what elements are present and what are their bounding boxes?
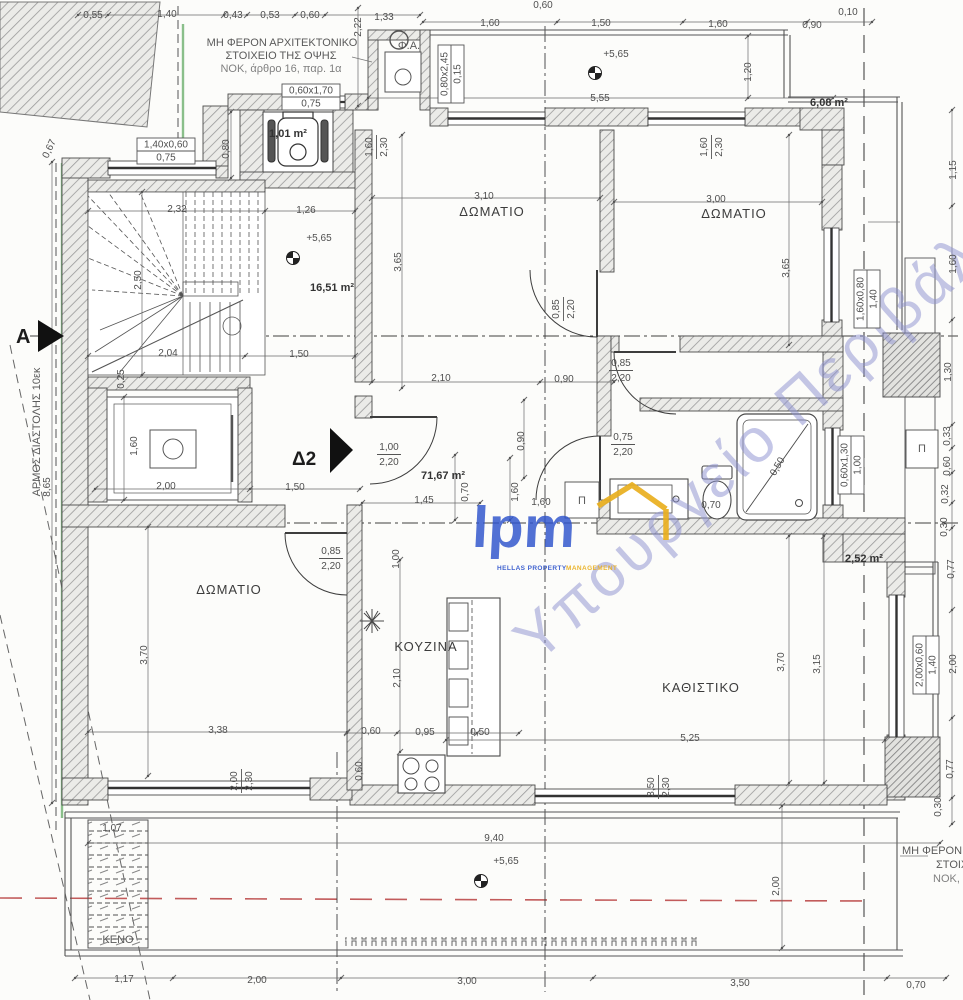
window-top-left [448, 112, 545, 125]
window-living-south [535, 789, 735, 803]
room-label: ΚΑΘΙΣΤΙΚΟ [662, 680, 740, 695]
window-tag: 0,60x1,700,75 [282, 84, 340, 110]
svg-text:2,00x0,60: 2,00x0,60 [915, 643, 926, 687]
dim-label: 0,90 [802, 20, 822, 31]
expansion-joint-label: ΑΡΜΟΣ ΔΙΑΣΤΟΛΗΣ 10εκ [31, 367, 43, 496]
detail-marker-label: Δ2 [292, 449, 316, 470]
svg-text:2,20: 2,20 [611, 373, 631, 384]
facade-note-2: ΣΤΟΙΧΕΙΟ ΤΗΣ ΟΨΗΣ [225, 50, 336, 62]
opening-tag: 1,602,30 [699, 135, 725, 159]
dim-label: 1,20 [743, 62, 754, 82]
dim-label: 0,77 [945, 759, 956, 779]
facade-note-3: ΝΟΚ, άρθρο 16, παρ. 1α [220, 63, 342, 75]
svg-text:0,75: 0,75 [301, 99, 321, 110]
floor-plan-svg: Υπουργείο Περιβάλ lpm HELLAS PROPERTY MA… [0, 0, 963, 1000]
room-label: ΔΩΜΑΤΙΟ [701, 206, 767, 221]
dim-label: 0,95 [415, 727, 435, 738]
dim-label: 2,00 [247, 975, 267, 986]
dim-label: 0,70 [906, 980, 926, 991]
room-label: ΔΩΜΑΤΙΟ [196, 582, 262, 597]
svg-text:3,50: 3,50 [646, 777, 657, 797]
dim-chain [72, 975, 949, 981]
dim-label: 1,50 [285, 482, 305, 493]
svg-text:2,20: 2,20 [566, 299, 577, 319]
dim-label: 3,65 [393, 252, 404, 272]
dim-label: 0,60 [361, 726, 381, 737]
opening-tag: 1,002,20 [377, 442, 401, 468]
room-label: ΚΟΥΖΙΝΑ [394, 639, 457, 654]
svg-text:0,60x1,70: 0,60x1,70 [289, 86, 333, 97]
wheelchair-lift [263, 112, 333, 172]
br-note-1: ΜΗ ΦΕΡΟΝ [902, 845, 962, 857]
svg-text:1,00: 1,00 [853, 455, 864, 475]
level-label: +5,65 [603, 49, 629, 60]
dim-label: 2,50 [133, 270, 144, 290]
dim-label: 3,10 [474, 191, 494, 202]
dim-label: 1,60 [510, 482, 521, 502]
section-marker-label: A [16, 326, 30, 348]
svg-text:1,60: 1,60 [699, 137, 710, 157]
svg-text:2,20: 2,20 [321, 561, 341, 572]
pi-label-2: Π [918, 443, 926, 455]
dim-label: 0,25 [116, 369, 127, 389]
dim-label: 1,00 [391, 549, 402, 569]
dim-label: 3,70 [139, 645, 150, 665]
svg-text:0,85: 0,85 [321, 546, 341, 557]
dim-label: 3,15 [812, 654, 823, 674]
dim-label: 0,90 [554, 374, 574, 385]
dim-label: 5,55 [590, 93, 610, 104]
dim-label: 1,40 [157, 9, 177, 20]
dim-label: 1,60 [531, 497, 551, 508]
dim-label: 2,22 [353, 17, 364, 37]
section-marker-a: A [16, 320, 64, 352]
opening-tag: 0,852,20 [319, 546, 343, 572]
svg-text:1,40: 1,40 [869, 289, 880, 309]
br-note-2: ΣΤΟΙΧΕΙ [936, 859, 963, 871]
window-living-east [889, 595, 904, 737]
svg-text:0,75: 0,75 [156, 153, 176, 164]
area-label: 2,52 m² [845, 553, 883, 565]
pi-label-1: Π [578, 495, 586, 507]
dim-label: 2,00 [771, 876, 782, 896]
dim-chain [443, 737, 888, 743]
dim-label: 0,43 [223, 10, 243, 21]
dim-label: 2,00 [156, 481, 176, 492]
lpm-tagline-a: HELLAS PROPERTY [497, 565, 567, 572]
svg-text:0,85: 0,85 [551, 299, 562, 319]
dim-label: 0,60 [942, 456, 953, 476]
dim-label: 5,25 [680, 733, 700, 744]
window-tag: 1,60x0,801,40 [854, 270, 880, 328]
svg-text:2,20: 2,20 [613, 447, 633, 458]
area-label: 6,08 m² [810, 97, 848, 109]
area-label: 71,67 m² [421, 470, 465, 482]
svg-text:0,15: 0,15 [453, 64, 464, 84]
opening-tag: 0,752,20 [611, 432, 635, 458]
opening-tag: 1,602,30 [364, 135, 390, 159]
svg-text:1,40x0,60: 1,40x0,60 [144, 140, 188, 151]
lpm-tagline-b: MANAGEMENT [566, 565, 617, 572]
dim-label: 3,00 [706, 194, 726, 205]
dim-label: 0,70 [701, 500, 721, 511]
area-label: 1,01 m² [269, 128, 307, 140]
svg-text:0,60x1,30: 0,60x1,30 [840, 443, 851, 487]
svg-text:1,40: 1,40 [928, 655, 939, 675]
dim-chain [786, 132, 792, 348]
dim-chain [397, 557, 403, 755]
dim-label: 0,70 [460, 482, 471, 502]
dim-label: 0,55 [83, 10, 103, 21]
svg-text:2,30: 2,30 [661, 777, 672, 797]
room-label: ΔΩΜΑΤΙΟ [459, 204, 525, 219]
dim-chain [452, 452, 458, 523]
svg-text:2,00: 2,00 [229, 771, 240, 791]
window-tag: 2,00x0,601,40 [913, 636, 939, 694]
svg-text:0,75: 0,75 [613, 432, 633, 443]
svg-text:0,85: 0,85 [611, 358, 631, 369]
dim-label: 2,00 [948, 654, 959, 674]
dim-label: 0,60 [533, 0, 553, 11]
dim-label: 0,32 [940, 484, 951, 504]
dim-label: 1,17 [114, 974, 134, 985]
dim-label: 0,90 [516, 431, 527, 451]
dim-label: 2,10 [392, 668, 403, 688]
dim-label: 0,10 [838, 7, 858, 18]
dim-label: 0,30 [933, 797, 944, 817]
dim-label: 0,67 [41, 137, 59, 160]
svg-text:2,30: 2,30 [379, 137, 390, 157]
dim-label: 1,07 [102, 823, 122, 834]
dim-label: 1,33 [374, 12, 394, 23]
opening-tag: 0,852,20 [551, 297, 577, 321]
window-bedroom3 [108, 781, 310, 795]
level-label: +5,65 [306, 233, 332, 244]
level-benchmark-icon [287, 252, 300, 265]
svg-text:0,80x2,45: 0,80x2,45 [440, 52, 451, 96]
svg-text:1,00: 1,00 [379, 442, 399, 453]
dim-label: 0,30 [939, 517, 950, 537]
level-benchmark-icon [475, 875, 488, 888]
light-symbol [360, 609, 384, 633]
void-label: ΚΕΝΟ [102, 934, 134, 946]
dim-label: 3,65 [781, 258, 792, 278]
window-tag: 0,60x1,301,00 [838, 436, 864, 494]
dim-label: 2,04 [158, 348, 178, 359]
dim-label: 1,50 [289, 349, 309, 360]
area-label: 16,51 m² [310, 282, 354, 294]
opening-tag: 0,852,20 [609, 358, 633, 384]
floor-plan: Υπουργείο Περιβάλ lpm HELLAS PROPERTY MA… [0, 0, 963, 1000]
dim-label: 3,00 [457, 976, 477, 987]
void-area [88, 820, 148, 948]
gas-label: Φ.Α. [398, 40, 420, 52]
br-note-3: ΝΟΚ, άρθ [933, 873, 963, 885]
dim-label: 1,45 [414, 495, 434, 506]
dim-chain [85, 840, 943, 846]
dim-label: 1,50 [591, 18, 611, 29]
svg-text:2,30: 2,30 [714, 137, 725, 157]
window-top-right [648, 112, 745, 125]
dim-label: 0,33 [942, 426, 953, 446]
dim-label: 1,15 [948, 160, 959, 180]
svg-text:1,60: 1,60 [364, 137, 375, 157]
dim-label: 0,50 [470, 727, 490, 738]
dim-label: 8,65 [42, 477, 53, 497]
neighbor-building-hatch [0, 2, 160, 127]
dim-label: 0,53 [260, 10, 280, 21]
dim-label: 0,77 [946, 559, 957, 579]
dim-label: 1,30 [943, 362, 954, 382]
dim-label: 1,60 [708, 19, 728, 30]
svg-text:2,30: 2,30 [244, 771, 255, 791]
kitchen-fixtures [360, 598, 500, 793]
svg-text:1,60x0,80: 1,60x0,80 [856, 277, 867, 321]
dim-label: 3,38 [208, 725, 228, 736]
dim-label: 2,10 [431, 373, 451, 384]
window-tag: 0,80x2,450,15 [438, 45, 464, 103]
dim-label: 2,32 [167, 204, 187, 215]
detail-marker-d2: Δ2 [292, 428, 353, 473]
lpm-logo-text: lpm [471, 495, 577, 560]
dim-label: 0,80 [221, 139, 232, 159]
level-label: +5,65 [493, 856, 519, 867]
dim-label: 0,60 [354, 761, 365, 781]
dim-label: 1,26 [296, 205, 316, 216]
svg-text:2,20: 2,20 [379, 457, 399, 468]
stove-icon [398, 755, 445, 793]
dim-label: 3,50 [730, 978, 750, 989]
facade-note-1: ΜΗ ΦΕΡΟΝ ΑΡΧΙΤΕΚΤΟΝΙΚΟ [207, 37, 358, 49]
window-tag: 1,40x0,600,75 [137, 138, 195, 164]
dim-chain [369, 379, 617, 385]
dim-label: 9,40 [484, 833, 504, 844]
window-bedroom2-balcony [824, 228, 839, 322]
dim-label: 0,60 [300, 10, 320, 21]
dim-label: 1,60 [480, 18, 500, 29]
dim-label: 1,60 [129, 436, 140, 456]
level-benchmark-icon [589, 67, 602, 80]
dim-label: 1,60 [948, 254, 959, 274]
dim-label: 3,70 [776, 652, 787, 672]
